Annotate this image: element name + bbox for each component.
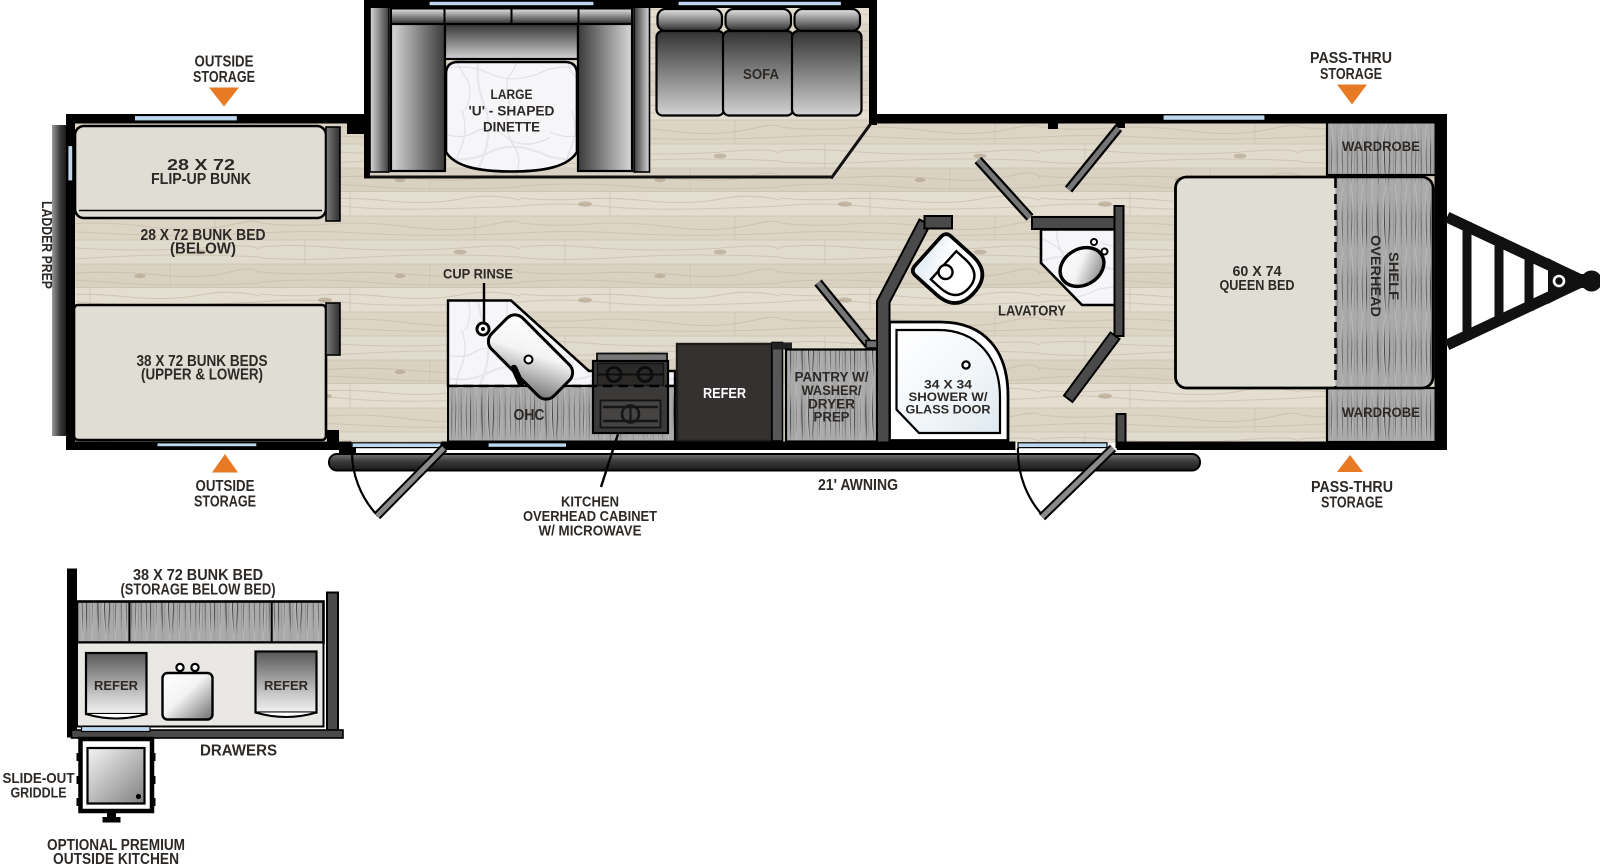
svg-text:LARGE: LARGE [491, 87, 533, 102]
svg-text:PASS-THRU: PASS-THRU [1310, 50, 1392, 67]
svg-text:STORAGE: STORAGE [1321, 495, 1383, 512]
svg-text:OUTSIDE: OUTSIDE [195, 54, 254, 71]
svg-text:(BELOW): (BELOW) [170, 241, 236, 258]
svg-text:SHOWER W/: SHOWER W/ [909, 392, 989, 404]
svg-text:LAVATORY: LAVATORY [998, 304, 1066, 320]
svg-text:OHC: OHC [514, 407, 545, 424]
svg-text:LADDER PREP: LADDER PREP [38, 201, 55, 289]
svg-text:GRIDDLE: GRIDDLE [11, 785, 67, 802]
svg-text:34 X 34: 34 X 34 [924, 380, 973, 392]
svg-text:'U' - SHAPED: 'U' - SHAPED [469, 104, 555, 119]
svg-text:21' AWNING: 21' AWNING [818, 477, 898, 494]
svg-text:OUTSIDE KITCHEN: OUTSIDE KITCHEN [53, 851, 179, 864]
svg-text:STORAGE: STORAGE [193, 69, 255, 86]
svg-text:DINETTE: DINETTE [483, 120, 540, 135]
svg-text:FLIP-UP BUNK: FLIP-UP BUNK [151, 171, 252, 188]
svg-text:WARDROBE: WARDROBE [1342, 404, 1420, 420]
svg-text:(STORAGE BELOW BED): (STORAGE BELOW BED) [121, 582, 276, 599]
svg-text:REFER: REFER [264, 678, 309, 693]
svg-text:WARDROBE: WARDROBE [1342, 138, 1420, 154]
svg-text:OUTSIDE: OUTSIDE [196, 478, 255, 495]
svg-text:STORAGE: STORAGE [1320, 66, 1382, 83]
svg-text:STORAGE: STORAGE [194, 494, 256, 511]
svg-text:OVERHEAD: OVERHEAD [1368, 235, 1384, 317]
svg-text:SOFA: SOFA [743, 67, 779, 83]
svg-text:W/ MICROWAVE: W/ MICROWAVE [539, 523, 642, 540]
svg-text:PREP: PREP [814, 410, 850, 425]
svg-text:REFER: REFER [703, 385, 746, 402]
svg-text:(UPPER & LOWER): (UPPER & LOWER) [141, 367, 263, 384]
svg-text:PASS-THRU: PASS-THRU [1311, 479, 1393, 496]
svg-text:QUEEN BED: QUEEN BED [1220, 278, 1295, 294]
svg-text:SHELF: SHELF [1386, 252, 1402, 300]
svg-text:DRAWERS: DRAWERS [200, 743, 277, 760]
svg-text:CUP RINSE: CUP RINSE [443, 266, 513, 282]
svg-text:REFER: REFER [94, 678, 139, 693]
svg-text:GLASS DOOR: GLASS DOOR [906, 405, 992, 417]
